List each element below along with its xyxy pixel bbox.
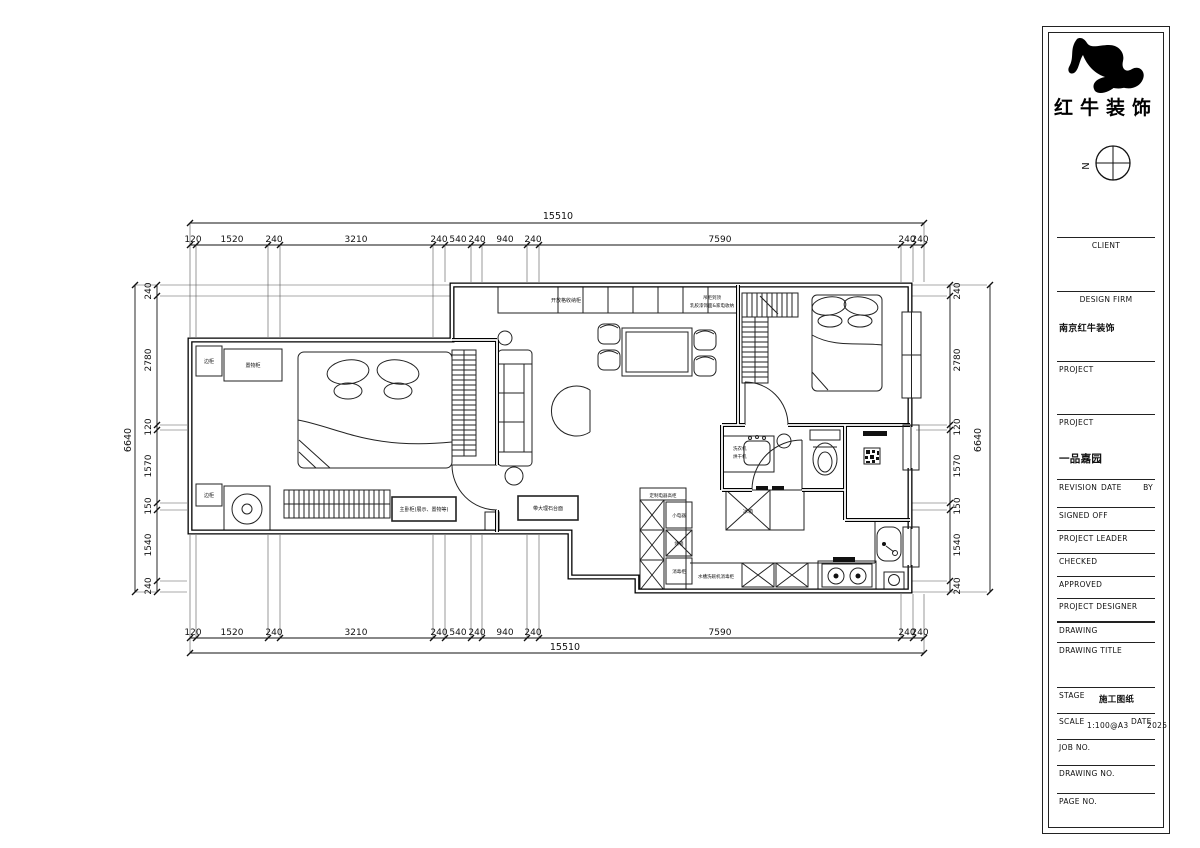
- drawing-sheet: 15510 120 1520 240 3210 240 540 240 940 …: [0, 0, 1200, 848]
- shower-threshold: [863, 431, 887, 436]
- svg-text:1540: 1540: [953, 533, 963, 556]
- scale-label: SCALE: [1059, 717, 1085, 726]
- svg-text:240: 240: [524, 235, 541, 245]
- windows: [902, 312, 921, 567]
- svg-text:烘干机: 烘干机: [733, 453, 747, 460]
- svg-text:小电器: 小电器: [672, 512, 686, 519]
- sofa: [498, 350, 532, 485]
- svg-text:主卧柜(展示、置物等): 主卧柜(展示、置物等): [400, 506, 449, 513]
- svg-text:1570: 1570: [953, 454, 963, 477]
- svg-text:120: 120: [953, 418, 963, 435]
- svg-text:2780: 2780: [953, 348, 963, 371]
- svg-text:240: 240: [911, 628, 928, 638]
- kitchen-sink: [877, 527, 901, 561]
- radiator: [284, 490, 390, 518]
- divider: [1057, 576, 1155, 577]
- svg-text:消毒柜: 消毒柜: [672, 568, 686, 575]
- divider: [1057, 414, 1155, 415]
- divider: [1057, 793, 1155, 794]
- svg-text:边柜: 边柜: [204, 358, 214, 365]
- dim-text-left: 6640 240 2780 120 1570 150 1540 240: [123, 282, 154, 594]
- svg-text:置物柜: 置物柜: [245, 362, 260, 369]
- svg-text:冰箱: 冰箱: [743, 508, 753, 515]
- svg-text:吊柜到顶: 吊柜到顶: [703, 294, 721, 301]
- stage-label: STAGE: [1059, 691, 1085, 700]
- side-table: [505, 467, 523, 485]
- svg-text:940: 940: [496, 628, 513, 638]
- fridge: [726, 486, 804, 530]
- drawing-title-label: DRAWING TITLE: [1059, 646, 1122, 655]
- armchair: [551, 386, 590, 436]
- divider: [1057, 765, 1155, 766]
- approved-label: APPROVED: [1059, 580, 1102, 589]
- svg-text:定制电器高柜: 定制电器高柜: [650, 492, 677, 499]
- svg-text:3210: 3210: [345, 235, 368, 245]
- svg-text:940: 940: [496, 235, 513, 245]
- cabinet-row-top: [498, 287, 738, 345]
- date-value: 2025: [1147, 721, 1167, 730]
- divider: [1057, 713, 1155, 714]
- drawing-label: DRAWING: [1059, 626, 1098, 635]
- svg-text:乳胶漆饰面&家电收纳: 乳胶漆饰面&家电收纳: [690, 302, 735, 309]
- divider: [1057, 553, 1155, 554]
- svg-text:1540: 1540: [144, 533, 154, 556]
- svg-text:540: 540: [449, 628, 466, 638]
- floor-drain: [864, 448, 880, 464]
- dining-set: [598, 324, 716, 376]
- title-block: 红牛装饰 N CLIENT DESIGN FIRM 南京红牛装饰 PROJECT…: [1042, 26, 1170, 834]
- dim-text-bottom: 15510 120 1520 240 3210 240 540 240 940 …: [184, 628, 928, 653]
- design-firm-value: 南京红牛装饰: [1059, 321, 1115, 334]
- svg-text:1570: 1570: [144, 454, 154, 477]
- svg-text:水槽洗碗机消毒柜: 水槽洗碗机消毒柜: [698, 573, 734, 580]
- north-arrow: N: [1043, 135, 1169, 195]
- project-label-2: PROJECT: [1059, 418, 1094, 427]
- svg-text:3210: 3210: [345, 628, 368, 638]
- washing-machine: [224, 486, 270, 532]
- date-label: DATE: [1101, 483, 1122, 492]
- svg-text:540: 540: [449, 235, 466, 245]
- floor-plan: 15510 120 1520 240 3210 240 540 240 940 …: [0, 0, 1040, 848]
- svg-text:240: 240: [468, 235, 485, 245]
- svg-text:240: 240: [953, 577, 963, 594]
- project-name: 一品嘉园: [1059, 451, 1102, 466]
- client-label: CLIENT: [1043, 241, 1169, 250]
- door-bedroom2: [745, 382, 788, 425]
- svg-text:240: 240: [144, 577, 154, 594]
- page-no-label: PAGE NO.: [1059, 797, 1097, 806]
- divider: [1057, 361, 1155, 362]
- svg-text:7590: 7590: [709, 628, 732, 638]
- divider: [1057, 237, 1155, 238]
- divider: [1057, 598, 1155, 599]
- divider: [1057, 642, 1155, 643]
- scale-value: 1:100@A3: [1087, 721, 1128, 730]
- door-master: [452, 465, 497, 510]
- dim-text-top: 15510 120 1520 240 3210 240 540 240 940 …: [184, 211, 928, 245]
- bed-bedroom2: [811, 295, 882, 391]
- logo-text: 红牛装饰: [1043, 93, 1169, 120]
- stage-value: 施工图纸: [1099, 693, 1134, 705]
- svg-text:7590: 7590: [709, 235, 732, 245]
- svg-text:开放格收纳柜: 开放格收纳柜: [551, 297, 581, 304]
- revision-label: REVISION: [1059, 483, 1097, 492]
- by-label: BY: [1143, 483, 1153, 492]
- svg-text:120: 120: [184, 235, 201, 245]
- project-leader-label: PROJECT LEADER: [1059, 534, 1128, 543]
- dim-text-right: 6640 240 2780 120 1570 150 1540 240: [953, 282, 984, 594]
- svg-text:240: 240: [265, 628, 282, 638]
- svg-text:240: 240: [144, 282, 154, 299]
- svg-text:240: 240: [265, 235, 282, 245]
- svg-text:240: 240: [953, 282, 963, 299]
- svg-text:120: 120: [184, 628, 201, 638]
- svg-text:6640: 6640: [123, 428, 134, 452]
- svg-text:6640: 6640: [973, 428, 984, 452]
- signed-off-label: SIGNED OFF: [1059, 511, 1108, 520]
- svg-text:120: 120: [144, 418, 154, 435]
- water-heater: [884, 572, 904, 589]
- svg-text:240: 240: [430, 628, 447, 638]
- job-no-label: JOB NO.: [1059, 743, 1090, 752]
- bathroom-vanity: [722, 436, 774, 473]
- checked-label: CHECKED: [1059, 557, 1097, 566]
- bed-master: [298, 352, 452, 468]
- divider: [1057, 479, 1155, 480]
- svg-text:边柜: 边柜: [204, 492, 214, 499]
- svg-text:150: 150: [953, 497, 963, 514]
- svg-text:240: 240: [524, 628, 541, 638]
- divider: [1057, 291, 1155, 292]
- divider: [1057, 739, 1155, 740]
- drawing-no-label: DRAWING NO.: [1059, 769, 1115, 778]
- svg-text:240: 240: [430, 235, 447, 245]
- svg-text:240: 240: [468, 628, 485, 638]
- svg-text:1520: 1520: [221, 628, 244, 638]
- divider: [1057, 530, 1155, 531]
- design-firm-label: DESIGN FIRM: [1043, 295, 1169, 304]
- wardrobe-master: [452, 350, 476, 456]
- project-designer-label: PROJECT DESIGNER: [1059, 602, 1137, 611]
- svg-text:15510: 15510: [550, 642, 580, 653]
- project-label-1: PROJECT: [1059, 365, 1094, 374]
- divider: [1057, 507, 1155, 508]
- svg-text:2780: 2780: [144, 348, 154, 371]
- plan-labels: 开放格收纳柜 吊柜到顶 乳胶漆饰面&家电收纳 边柜 置物柜 边柜 主卧柜(展示、…: [204, 294, 753, 580]
- svg-text:烤箱: 烤箱: [675, 540, 684, 547]
- svg-text:150: 150: [144, 497, 154, 514]
- toilet: [810, 430, 840, 475]
- svg-text:1520: 1520: [221, 235, 244, 245]
- stove: [818, 557, 876, 590]
- divider: [1057, 687, 1155, 688]
- closet-bedroom2: [742, 293, 798, 383]
- svg-text:带大理石台面: 带大理石台面: [533, 505, 563, 512]
- svg-text:洗衣机: 洗衣机: [733, 445, 747, 452]
- svg-text:240: 240: [911, 235, 928, 245]
- north-label: N: [1081, 162, 1092, 169]
- furniture: [196, 287, 910, 590]
- divider: [1057, 621, 1155, 623]
- svg-text:15510: 15510: [543, 211, 573, 222]
